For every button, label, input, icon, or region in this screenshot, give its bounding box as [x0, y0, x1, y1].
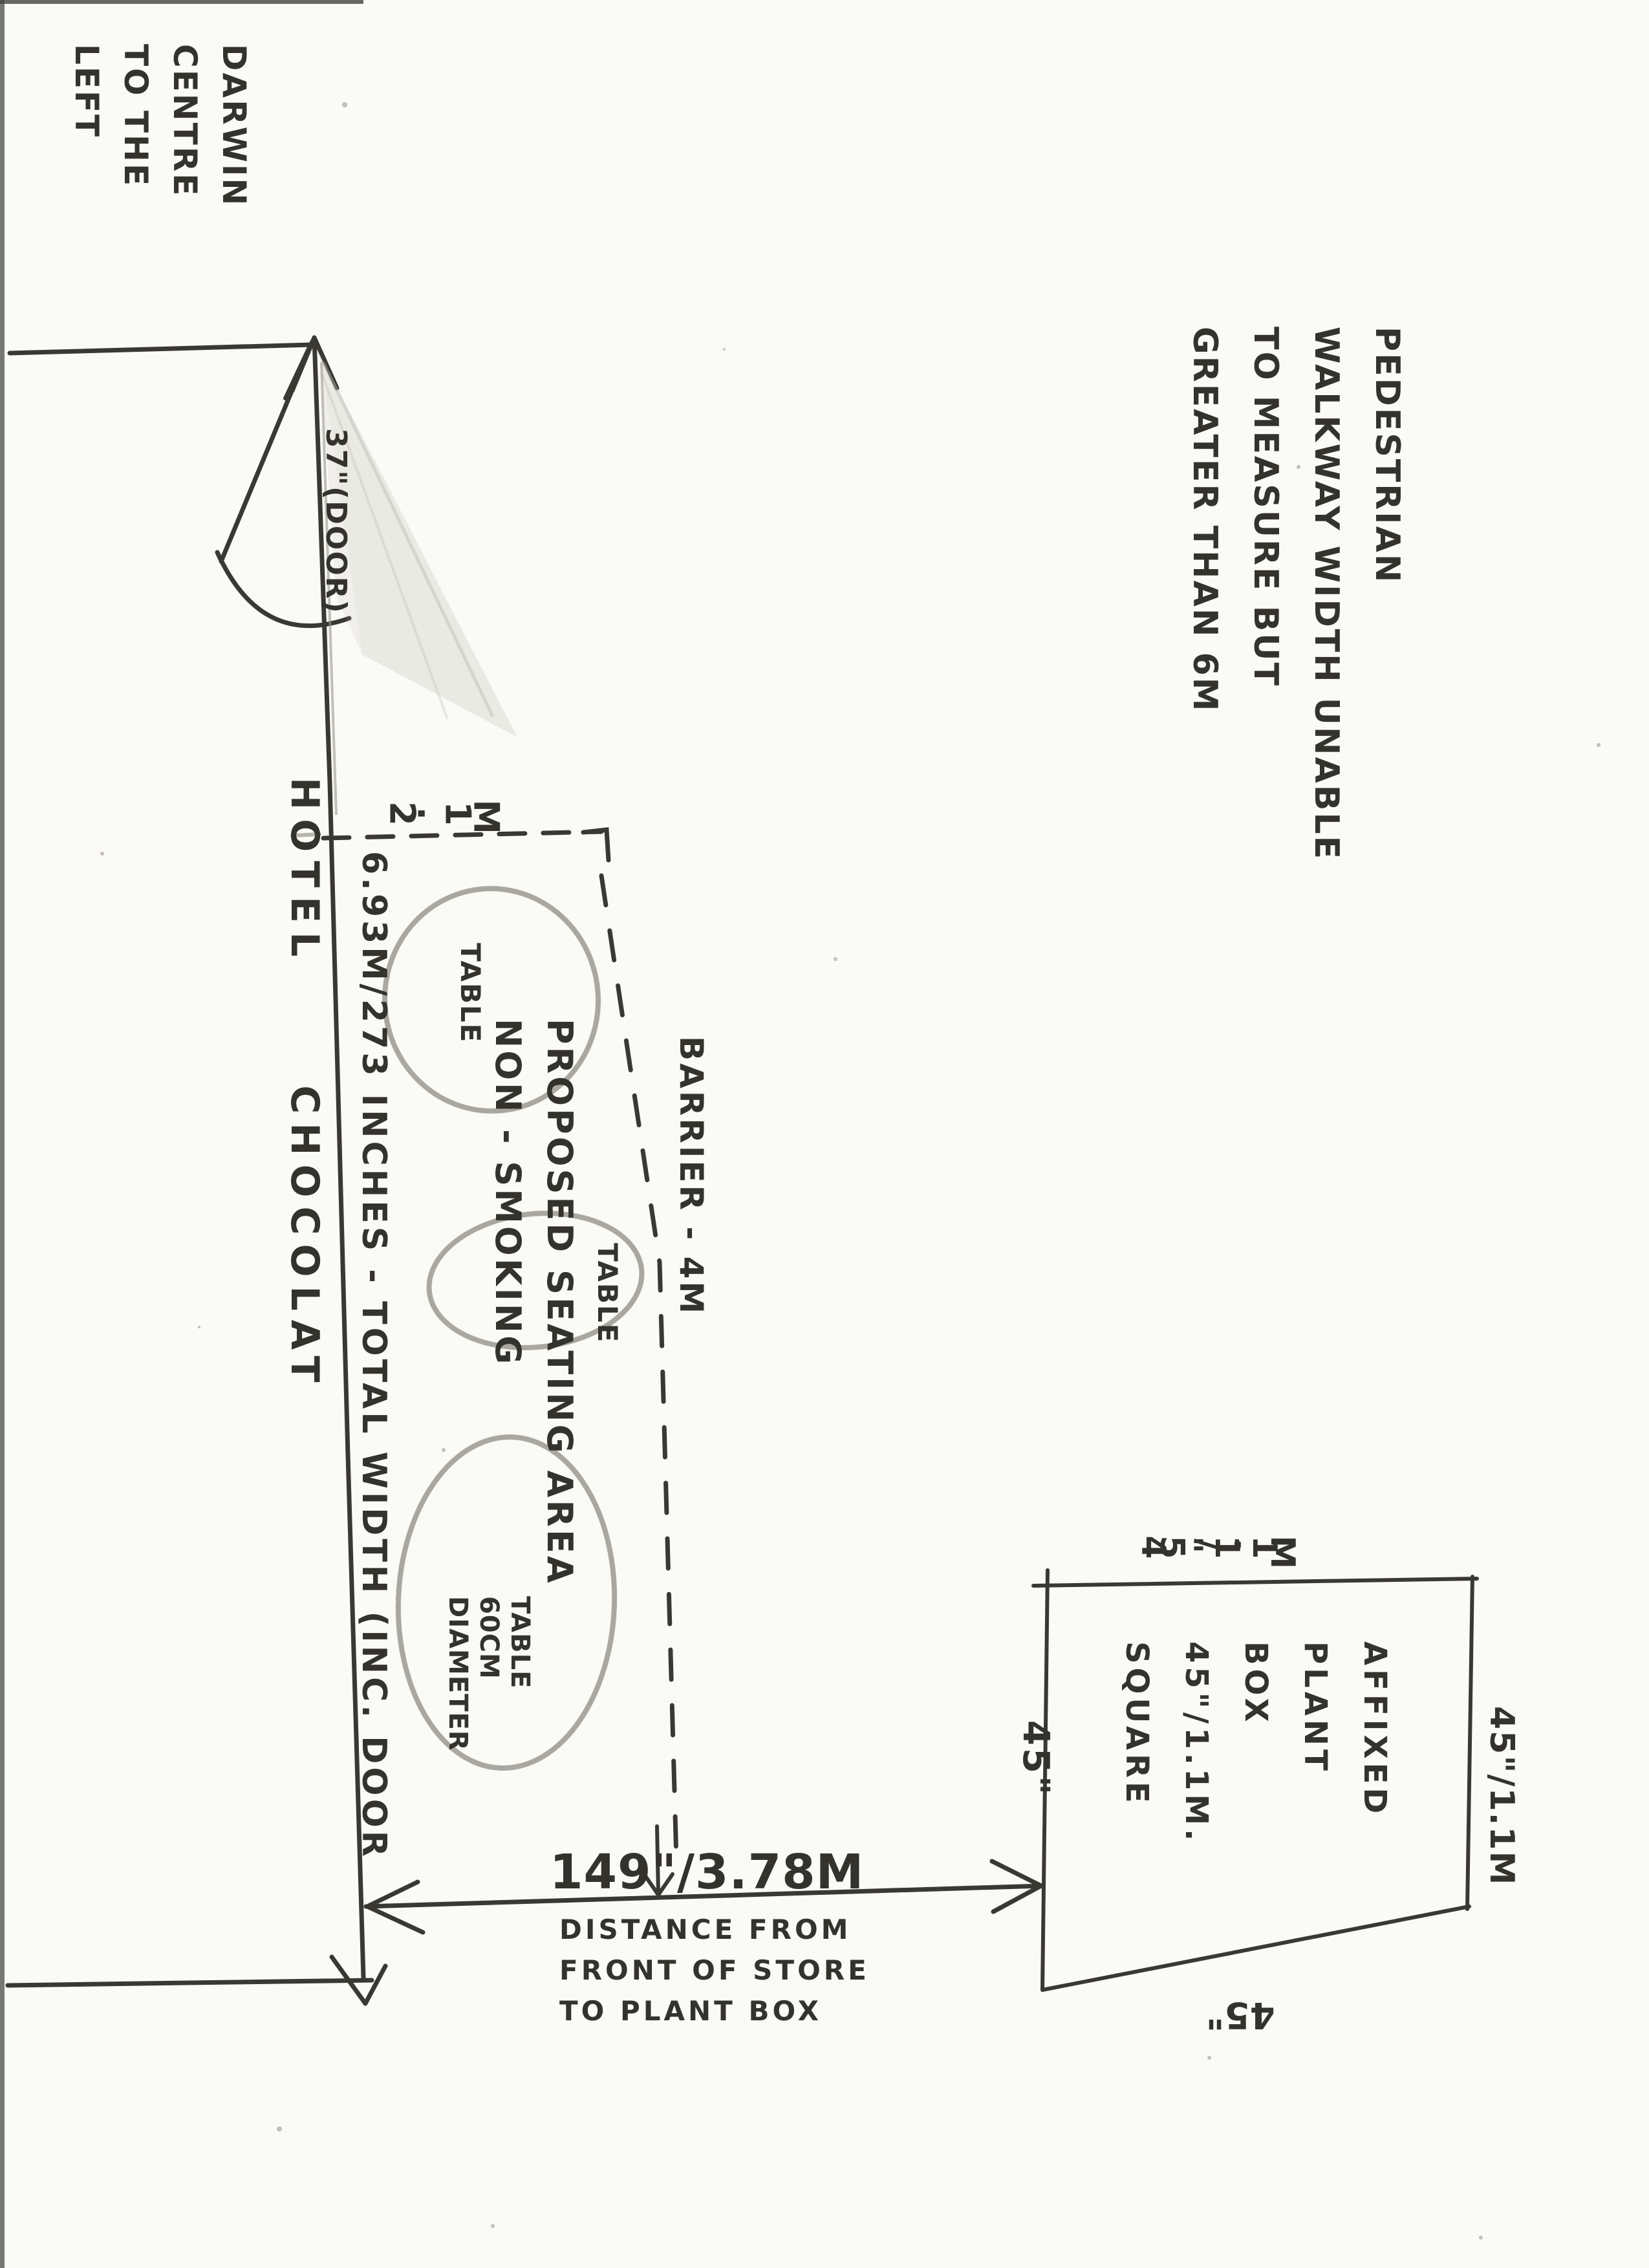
plant-box-bottom-label: 45"	[1182, 1993, 1299, 2036]
table3-line: DIAMETER	[442, 1596, 473, 1751]
bottom-wall-line	[8, 1980, 372, 1985]
top-wall-line	[10, 345, 312, 353]
store-front-width-label: 6.93M/273 INCHES - TOTAL WIDTH (INC. DOO…	[354, 851, 393, 1860]
plant-box-text: AFFIXED PLANT BOX 45"/1.1M. SQUARE	[1107, 1641, 1405, 1844]
barrier-dashed-line	[601, 876, 676, 1860]
plant-box-text-line: 45"/1.1M.	[1167, 1641, 1226, 1844]
table3-line: 60CM	[473, 1596, 504, 1751]
note-line: GREATER THAN 6M	[1174, 327, 1235, 861]
store-name-label: HOTEL CHOCOLAT	[281, 777, 327, 1392]
plant-box-left-label: 45"	[1014, 1720, 1057, 1797]
seating-area-title-line: PROPOSED SEATING AREA	[533, 1019, 585, 1586]
table2-label: TABLE	[591, 1243, 623, 1343]
plant-box-text-line: AFFIXED	[1345, 1641, 1405, 1844]
seating-area-corner-stroke	[583, 830, 609, 860]
note-pedestrian-walkway: PEDESTRIAN WALKWAY WIDTH UNABLE TO MEASU…	[1174, 327, 1417, 861]
door-width-label: 37"(DOOR)	[319, 428, 352, 614]
distance-caption-line: FRONT OF STORE	[559, 1950, 870, 1991]
plant-box-text-line: SQUARE	[1107, 1641, 1167, 1844]
seating-top-width-label: 2.1M	[388, 793, 500, 834]
distance-caption-line: TO PLANT BOX	[559, 1991, 870, 2031]
note-line: PEDESTRIAN	[1357, 327, 1417, 861]
table3-label: TABLE 60CM DIAMETER	[442, 1596, 535, 1751]
plant-box-text-line: PLANT	[1286, 1641, 1345, 1844]
door-leaf-line	[221, 341, 312, 561]
seating-area-subtitle-line: NON - SMOKING	[482, 1019, 533, 1586]
plant-box-right-label: 45"/1.1M	[1482, 1706, 1521, 1886]
note-line: TO MEASURE BUT	[1235, 327, 1296, 861]
note-line: TO THE	[111, 44, 160, 207]
plant-box-top-label: 45"/1.1M	[1143, 1525, 1291, 1564]
note-darwin-centre: DARWIN CENTRE TO THE LEFT	[62, 44, 259, 207]
barrier-label: BARRIER - 4M	[672, 1036, 710, 1316]
note-line: CENTRE	[160, 44, 210, 207]
distance-caption-line: DISTANCE FROM	[559, 1909, 870, 1950]
table3-line: TABLE	[504, 1596, 535, 1751]
table1-label: TABLE	[454, 943, 486, 1043]
seating-area-title: PROPOSED SEATING AREA NON - SMOKING	[482, 1019, 585, 1586]
distance-caption: DISTANCE FROM FRONT OF STORE TO PLANT BO…	[559, 1909, 870, 2031]
plant-box-text-line: BOX	[1226, 1641, 1286, 1844]
distance-value-label: 149"/3.78M	[550, 1844, 864, 1901]
note-line: WALKWAY WIDTH UNABLE	[1296, 327, 1357, 861]
note-line: DARWIN	[210, 44, 259, 207]
note-line: LEFT	[62, 44, 111, 207]
